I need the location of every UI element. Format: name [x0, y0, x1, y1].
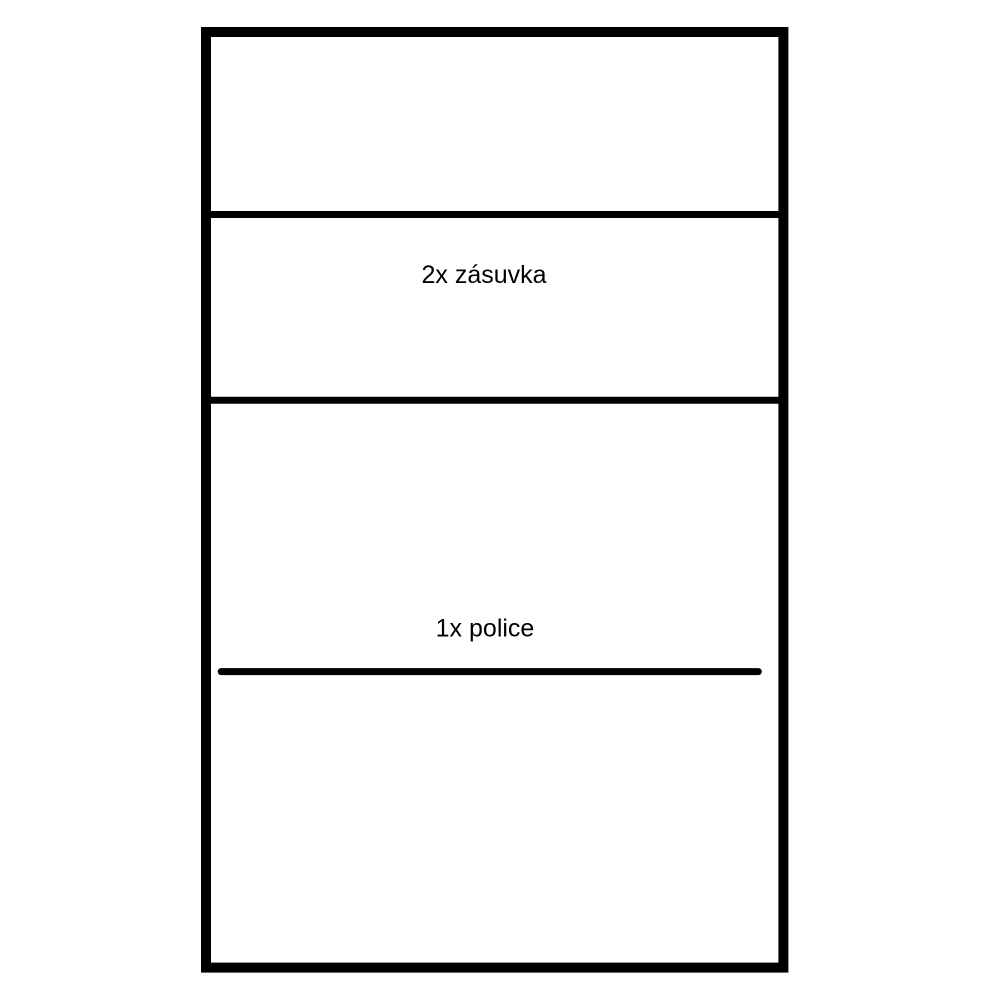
svg-text:1x police: 1x police — [436, 615, 535, 643]
svg-text:2x zásuvka: 2x zásuvka — [421, 261, 546, 289]
